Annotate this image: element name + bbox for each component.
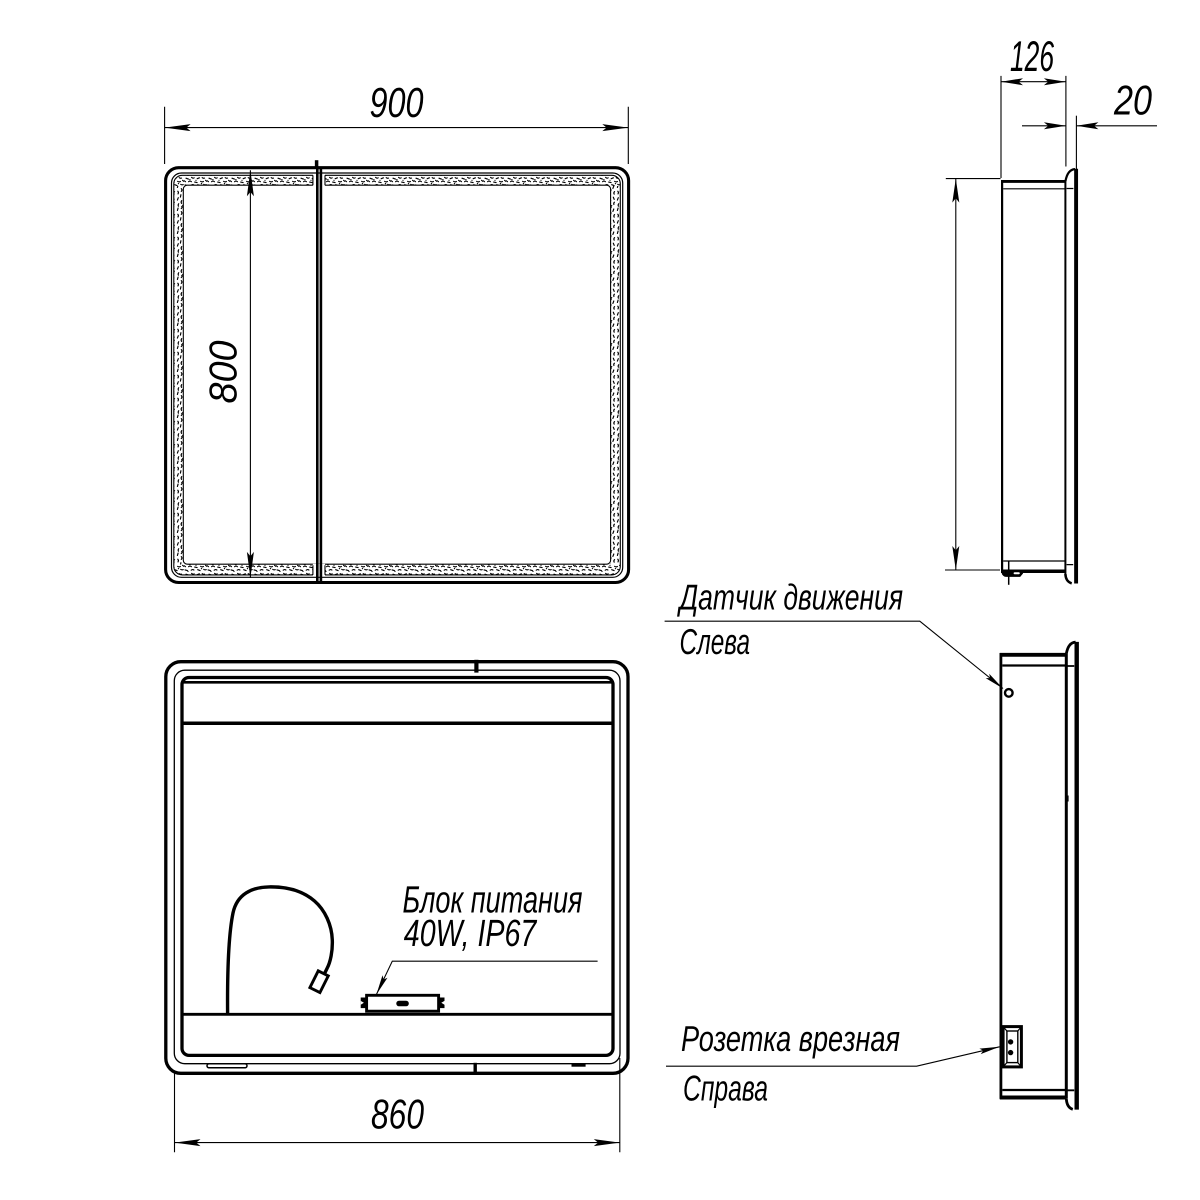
svg-text:40W, IP67: 40W, IP67 — [404, 913, 538, 955]
svg-text:800: 800 — [203, 340, 246, 403]
svg-text:Слева: Слева — [680, 621, 751, 662]
svg-text:Датчик движения: Датчик движения — [677, 577, 903, 618]
svg-text:Справа: Справа — [683, 1068, 768, 1109]
svg-text:126: 126 — [1010, 33, 1054, 81]
svg-text:860: 860 — [371, 1090, 424, 1137]
svg-text:Розетка врезная: Розетка врезная — [681, 1018, 900, 1059]
svg-text:20: 20 — [1113, 76, 1152, 123]
svg-text:900: 900 — [370, 79, 424, 126]
